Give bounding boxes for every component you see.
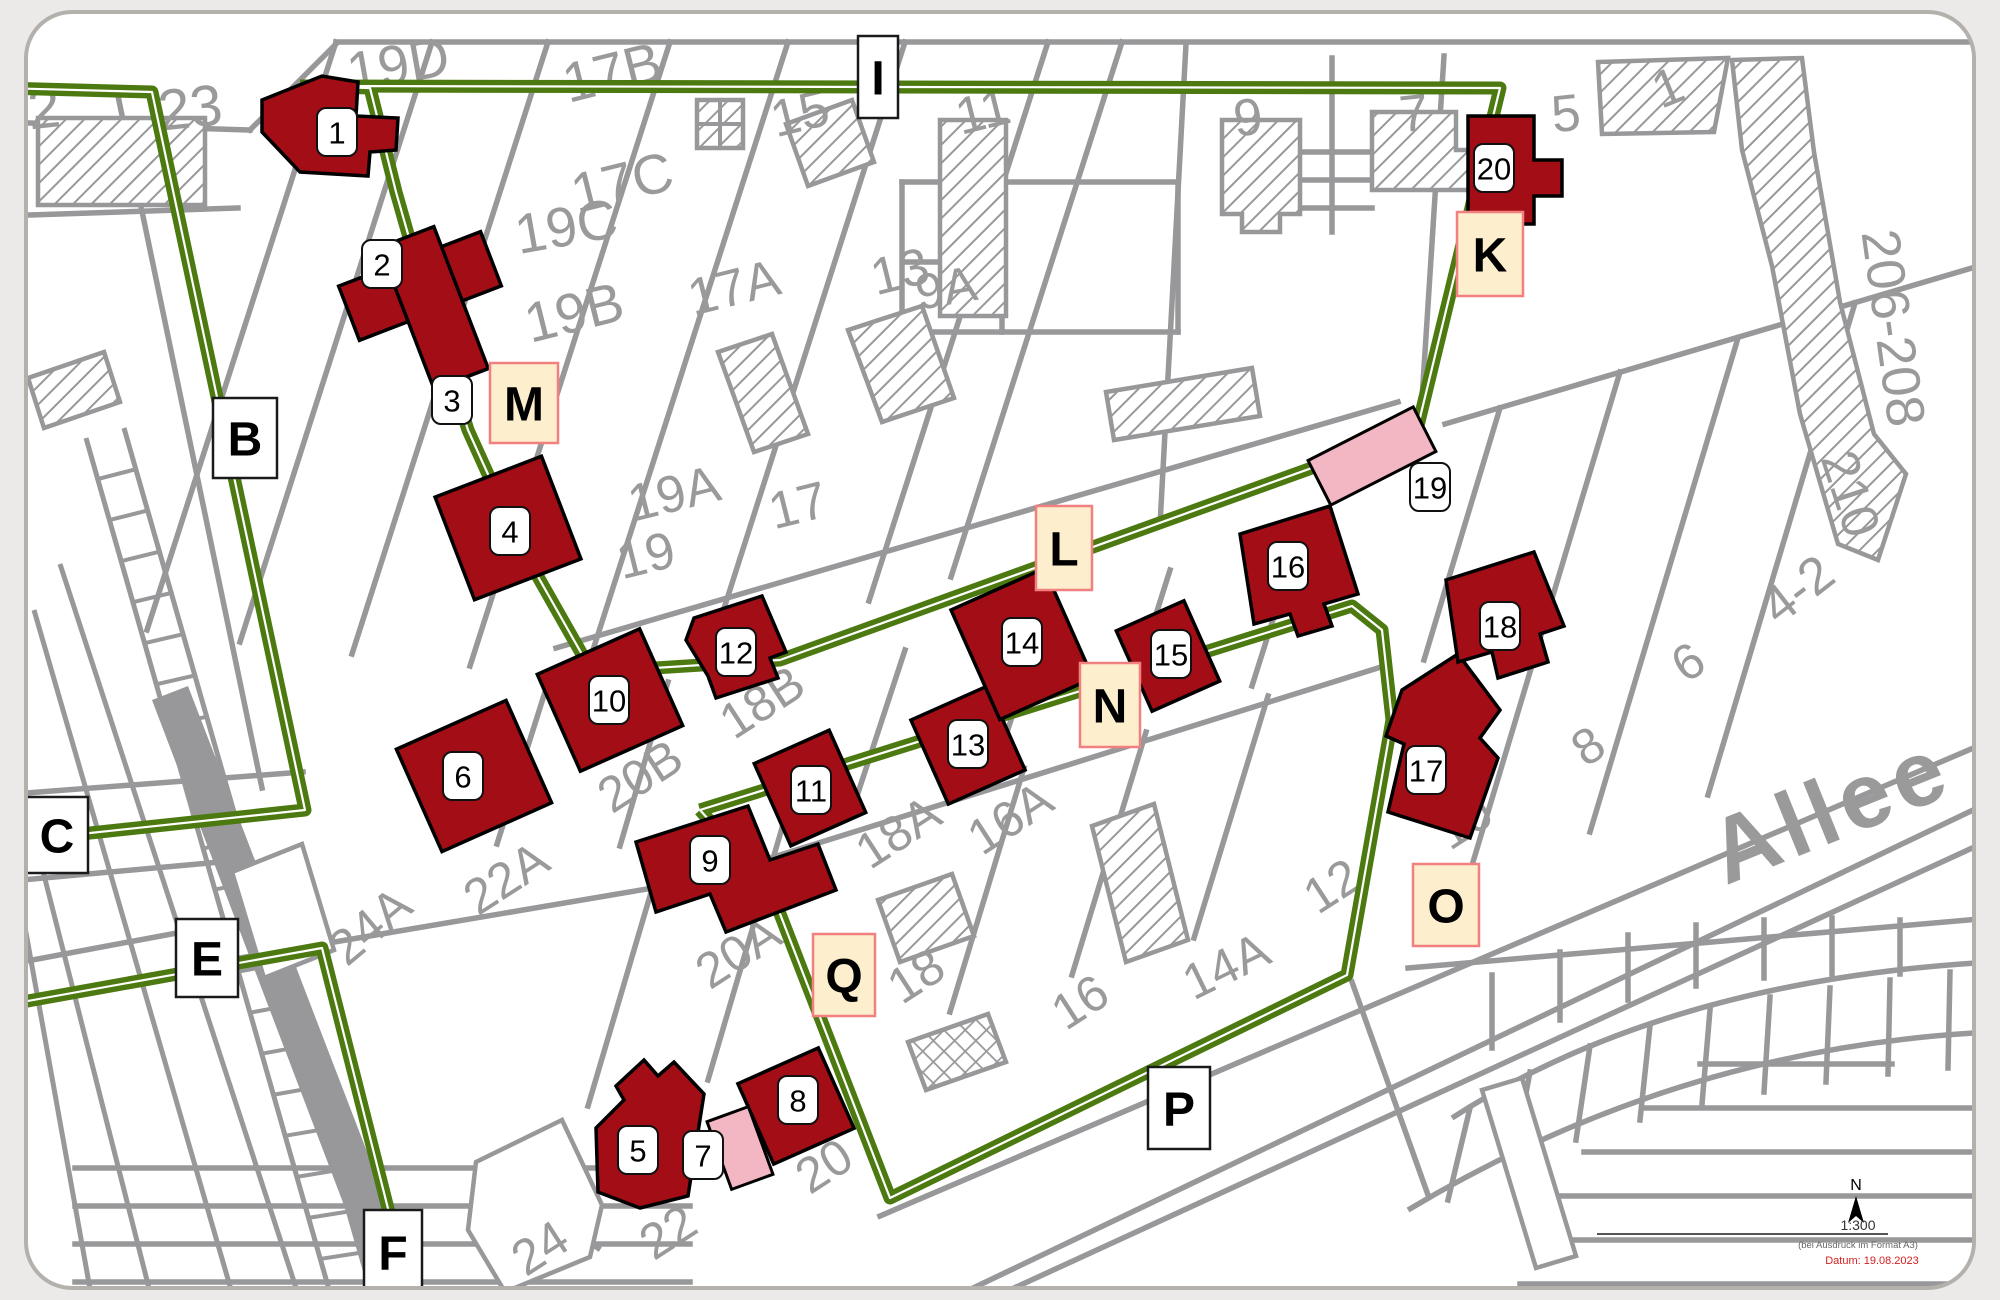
svg-text:N: N bbox=[1093, 681, 1128, 734]
route-marker-N: N bbox=[1080, 663, 1140, 747]
building-label-17: 17 bbox=[1406, 746, 1446, 794]
svg-text:11: 11 bbox=[795, 774, 827, 809]
building-label-7: 7 bbox=[683, 1131, 723, 1179]
building-label-2: 2 bbox=[362, 240, 402, 288]
svg-text:20: 20 bbox=[1477, 152, 1511, 187]
svg-text:15: 15 bbox=[1154, 638, 1188, 673]
svg-text:O: O bbox=[1427, 881, 1464, 934]
building-label-15: 15 bbox=[1151, 630, 1191, 678]
svg-text:3: 3 bbox=[443, 384, 460, 419]
building-label-5: 5 bbox=[618, 1126, 658, 1174]
svg-text:16: 16 bbox=[1271, 550, 1305, 585]
route-marker-K: K bbox=[1457, 212, 1523, 296]
svg-text:1: 1 bbox=[328, 116, 345, 151]
svg-text:8: 8 bbox=[789, 1084, 806, 1119]
route-marker-L: L bbox=[1036, 506, 1092, 590]
route-marker-P: P bbox=[1148, 1067, 1210, 1149]
svg-text:18: 18 bbox=[1483, 610, 1517, 645]
svg-text:13: 13 bbox=[951, 728, 985, 763]
svg-text:K: K bbox=[1473, 230, 1508, 283]
svg-text:F: F bbox=[378, 1228, 407, 1281]
route-marker-I: I bbox=[858, 36, 898, 118]
building-label-6: 6 bbox=[443, 752, 483, 800]
building-label-1: 1 bbox=[317, 108, 357, 156]
svg-text:M: M bbox=[504, 379, 544, 432]
svg-text:I: I bbox=[871, 53, 884, 106]
svg-text:14: 14 bbox=[1005, 626, 1039, 661]
scale-note: (bei Ausdruck im Format A3) bbox=[1798, 1240, 1918, 1251]
route-marker-B: B bbox=[213, 398, 277, 478]
svg-text:4: 4 bbox=[501, 515, 518, 550]
svg-text:L: L bbox=[1049, 524, 1078, 577]
building-label-12: 12 bbox=[716, 628, 756, 676]
svg-text:7: 7 bbox=[694, 1139, 711, 1174]
building-label-19: 19 bbox=[1410, 463, 1450, 511]
svg-text:Q: Q bbox=[825, 951, 862, 1004]
route-marker-C: C bbox=[26, 797, 88, 873]
svg-text:2: 2 bbox=[373, 248, 390, 283]
scale-text: 1:300 bbox=[1840, 1217, 1875, 1233]
svg-text:5: 5 bbox=[629, 1134, 646, 1169]
north-label: N bbox=[1850, 1177, 1862, 1194]
building-label-9: 9 bbox=[690, 836, 730, 884]
parcel-label-5: 5 bbox=[1549, 84, 1584, 145]
route-marker-O: O bbox=[1413, 864, 1479, 946]
building-label-13: 13 bbox=[948, 720, 988, 768]
svg-text:B: B bbox=[228, 414, 263, 467]
building-label-16: 16 bbox=[1268, 542, 1308, 590]
parcel-label-9: 9 bbox=[1231, 88, 1266, 149]
svg-text:6: 6 bbox=[454, 760, 471, 795]
svg-text:12: 12 bbox=[719, 636, 753, 671]
parcel-label-9A: 9A bbox=[911, 255, 982, 321]
svg-text:17: 17 bbox=[1409, 754, 1443, 789]
date-text: Datum: 19.08.2023 bbox=[1825, 1255, 1919, 1267]
site-map: 522319D17B17C19C19B17A1315119759A1206-20… bbox=[0, 0, 2000, 1300]
building-label-4: 4 bbox=[490, 507, 530, 555]
svg-text:19: 19 bbox=[1413, 471, 1447, 506]
svg-text:P: P bbox=[1163, 1084, 1195, 1137]
building-label-14: 14 bbox=[1002, 618, 1042, 666]
svg-text:10: 10 bbox=[592, 684, 626, 719]
route-marker-Q: Q bbox=[813, 934, 875, 1016]
map-page: 522319D17B17C19C19B17A1315119759A1206-20… bbox=[0, 0, 2000, 1300]
svg-text:9: 9 bbox=[701, 844, 718, 879]
building-label-20: 20 bbox=[1474, 144, 1514, 192]
route-marker-E: E bbox=[176, 919, 238, 997]
building-label-3: 3 bbox=[432, 376, 472, 424]
building-label-11: 11 bbox=[791, 766, 831, 814]
building-label-10: 10 bbox=[589, 676, 629, 724]
svg-text:C: C bbox=[40, 811, 75, 864]
building-label-8: 8 bbox=[778, 1076, 818, 1124]
svg-text:E: E bbox=[191, 934, 223, 987]
building-label-18: 18 bbox=[1480, 602, 1520, 650]
route-marker-F: F bbox=[364, 1210, 422, 1294]
route-marker-M: M bbox=[490, 363, 558, 443]
